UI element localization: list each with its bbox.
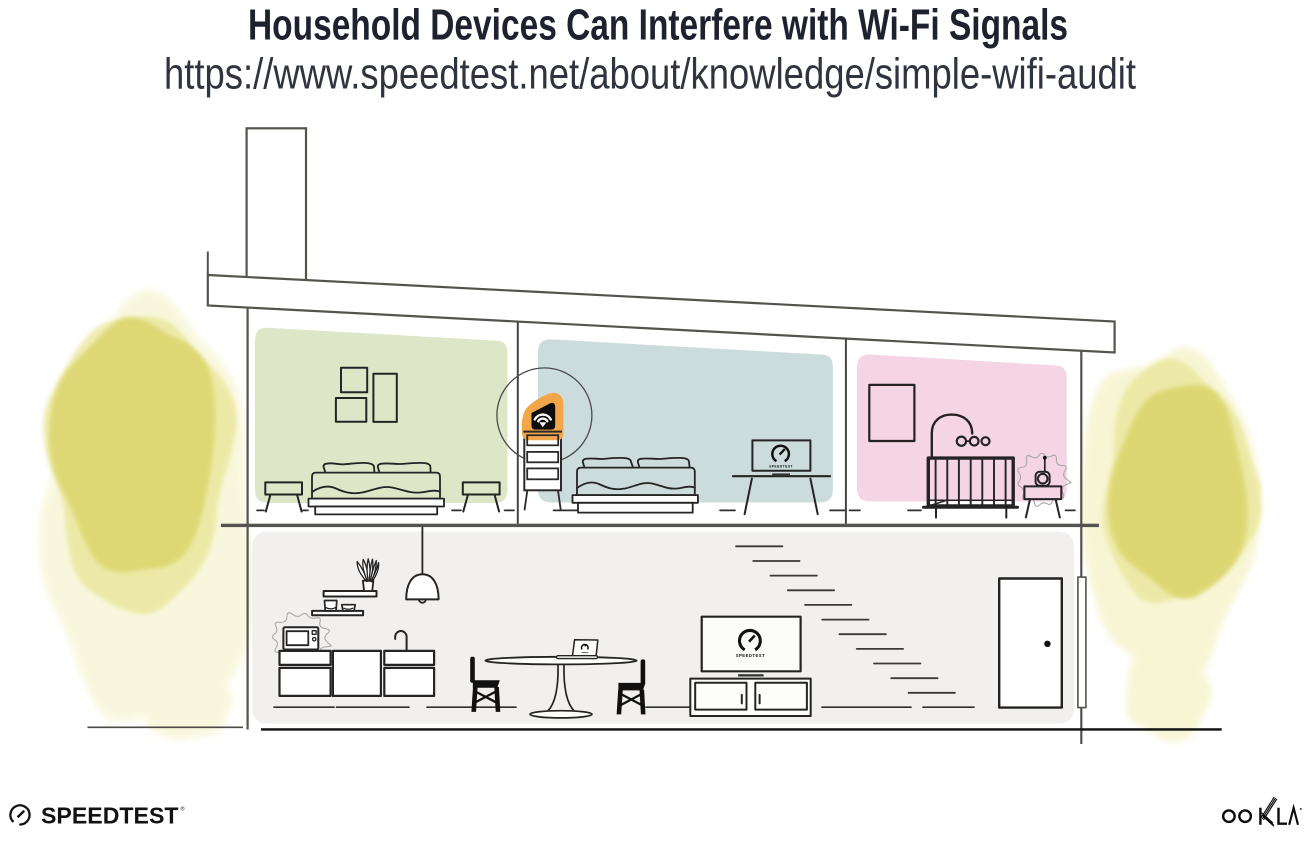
- svg-text:Household Devices Can Interfer: Household Devices Can Interfere with Wi-…: [248, 1, 1068, 49]
- svg-text:SPEEDTEST: SPEEDTEST: [736, 653, 765, 658]
- svg-text:SPEEDTEST: SPEEDTEST: [41, 802, 179, 828]
- svg-text:®: ®: [181, 806, 185, 813]
- svg-text:SPEEDTEST: SPEEDTEST: [769, 465, 793, 469]
- svg-text:https://www.speedtest.net/abou: https://www.speedtest.net/about/knowledg…: [164, 50, 1136, 99]
